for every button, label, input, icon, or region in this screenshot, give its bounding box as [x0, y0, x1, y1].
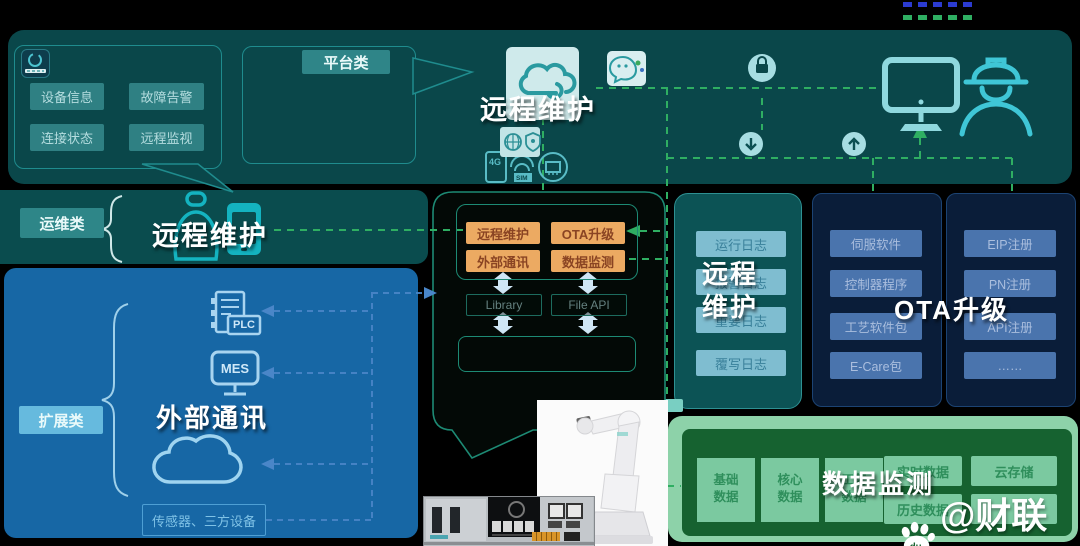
- remote-maintenance-title-logs: 远程 维护: [702, 258, 758, 324]
- eip-register-button: EIP注册: [964, 230, 1056, 257]
- remote-maintenance-title-top: 远程维护: [480, 88, 596, 127]
- ecare-package-button: E-Care包: [830, 352, 922, 379]
- fault-alarm-button: 故障告警: [129, 83, 204, 110]
- basic-data-label: 基础数据: [709, 472, 743, 506]
- cloud-app-icon: [21, 49, 50, 78]
- logs-title-line1: 远程: [702, 258, 758, 291]
- diagram-canvas: 4G SIM: [0, 0, 1080, 546]
- plc-label: PLC: [230, 318, 258, 332]
- library-box: Library: [466, 294, 542, 316]
- core-data-square: 核心数据: [761, 458, 819, 522]
- run-log-button: 运行日志: [696, 231, 786, 257]
- core-data-label: 核心数据: [773, 472, 807, 506]
- watermark: du @财联社: [897, 487, 1080, 546]
- basic-data-square: 基础数据: [697, 458, 755, 522]
- servo-software-button: 伺服软件: [830, 230, 922, 257]
- watermark-handle: @财联社: [940, 487, 1080, 546]
- baidu-paw-icon: du: [897, 520, 936, 546]
- orange-terminal-block: [532, 532, 560, 541]
- wechat-icon: [607, 51, 646, 86]
- ops-tag: 运维类: [20, 208, 104, 238]
- controller-strip-photo: [423, 496, 595, 546]
- dash-accent-green: [903, 15, 977, 20]
- cloud-storage-button: 云存储: [971, 456, 1057, 486]
- device-info-button: 设备信息: [30, 83, 104, 110]
- feature-data-monitoring: 数据监测: [551, 250, 625, 272]
- extension-tag: 扩展类: [19, 406, 103, 434]
- external-comm-title: 外部通讯: [156, 398, 268, 435]
- ota-upgrade-title: OTA升级: [894, 290, 1009, 327]
- remote-maintenance-title-ops: 远程维护: [152, 214, 268, 253]
- sensor-devices-box: 传感器、三方设备: [142, 504, 266, 536]
- bubble-empty-box: [458, 336, 636, 372]
- connection-status-button: 连接状态: [30, 124, 104, 151]
- dash-accent-blue: [903, 2, 977, 7]
- logs-title-line2: 维护: [702, 291, 758, 324]
- platform-tag: 平台类: [302, 50, 390, 74]
- remote-monitor-button: 远程监视: [129, 124, 204, 151]
- svg-text:du: du: [910, 542, 922, 546]
- feature-external-comm: 外部通讯: [466, 250, 540, 272]
- overwrite-log-button: 覆写日志: [696, 350, 786, 376]
- more-register-button: ……: [964, 352, 1056, 379]
- file-api-box: File API: [551, 294, 627, 316]
- feature-remote-maintenance: 远程维护: [466, 222, 540, 244]
- mes-label: MES: [212, 358, 258, 378]
- feature-ota-upgrade: OTA升级: [551, 222, 625, 244]
